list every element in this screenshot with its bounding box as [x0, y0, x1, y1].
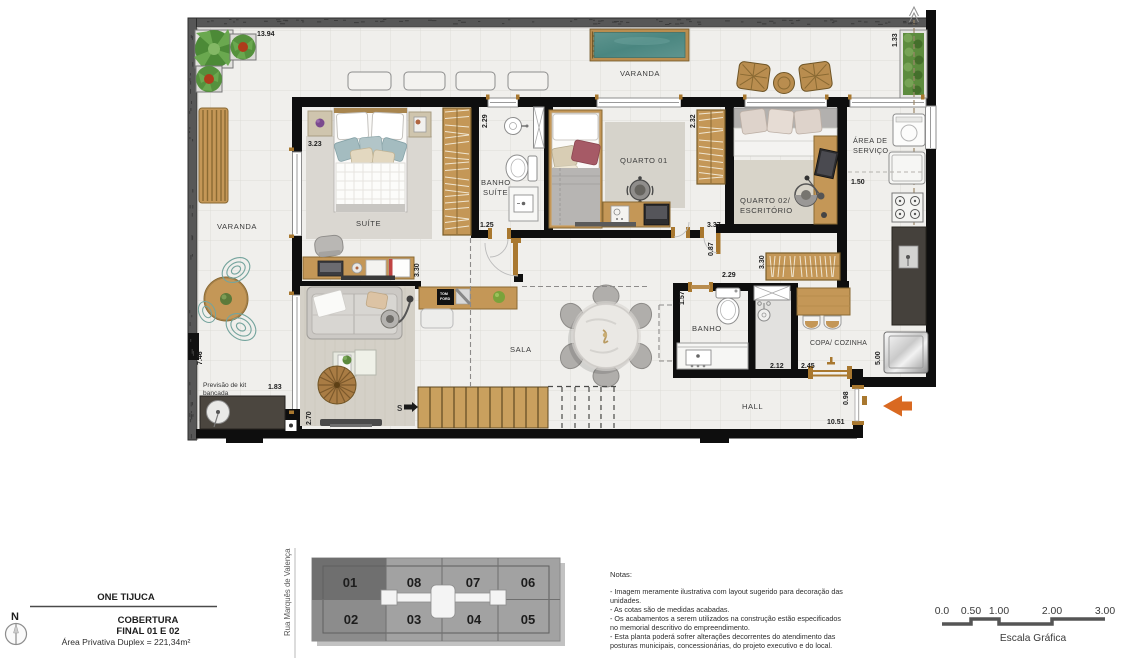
svg-text:FORD: FORD [440, 297, 451, 301]
svg-text:04: 04 [467, 612, 482, 627]
svg-text:HALL: HALL [742, 402, 763, 411]
svg-text:2.70: 2.70 [306, 411, 313, 425]
svg-text:2.29: 2.29 [722, 272, 736, 279]
svg-text:unidades.: unidades. [610, 596, 641, 605]
svg-text:TOM: TOM [440, 292, 448, 296]
svg-text:2.29: 2.29 [482, 114, 489, 128]
svg-text:FINAL 01 E 02: FINAL 01 E 02 [116, 626, 179, 637]
svg-text:VARANDA: VARANDA [217, 222, 257, 231]
svg-text:- Os acabamentos a serem utili: - Os acabamentos a serem utilizados na c… [610, 614, 841, 623]
svg-text:Previsão de kit: Previsão de kit [203, 382, 246, 389]
svg-text:3.30: 3.30 [759, 255, 766, 269]
svg-text:- Esta planta poderá sofrer a: - Esta planta poderá sofrer alterações d… [610, 632, 836, 641]
svg-text:7.46: 7.46 [197, 351, 204, 365]
svg-text:QUARTO 01: QUARTO 01 [620, 156, 668, 165]
svg-text:2.12: 2.12 [770, 363, 784, 370]
svg-text:Notas:: Notas: [610, 570, 632, 579]
svg-text:05: 05 [521, 612, 535, 627]
svg-text:COPA/ COZINHA: COPA/ COZINHA [810, 340, 867, 347]
svg-text:1.57: 1.57 [679, 291, 686, 305]
svg-text:ÁREA DE: ÁREA DE [853, 136, 887, 145]
svg-text:SALA: SALA [510, 345, 532, 354]
svg-text:2.45: 2.45 [801, 363, 815, 370]
svg-text:ONE TIJUCA: ONE TIJUCA [97, 592, 155, 603]
svg-text:SERVIÇO: SERVIÇO [853, 146, 889, 155]
svg-text:1.25: 1.25 [480, 222, 494, 229]
svg-text:0.98: 0.98 [843, 391, 850, 405]
svg-text:QUARTO 02/: QUARTO 02/ [740, 196, 791, 205]
svg-text:3.37: 3.37 [707, 222, 721, 229]
svg-text:S: S [397, 404, 403, 413]
svg-text:ESCRITÓRIO: ESCRITÓRIO [740, 206, 793, 215]
svg-text:1.33: 1.33 [892, 33, 899, 47]
svg-text:VARANDA: VARANDA [620, 69, 660, 78]
svg-text:SUÍTE: SUÍTE [483, 188, 508, 197]
svg-text:1.00: 1.00 [989, 606, 1009, 617]
svg-text:2.32: 2.32 [690, 114, 697, 128]
svg-text:1.50: 1.50 [851, 179, 865, 186]
svg-text:N: N [11, 611, 19, 623]
svg-text:10.51: 10.51 [827, 419, 845, 426]
svg-text:13.94: 13.94 [257, 31, 275, 38]
svg-text:Escala Gráfica: Escala Gráfica [1000, 633, 1067, 644]
svg-text:posturas municipais, concessio: posturas municipais, concessionárias, do… [610, 641, 832, 650]
svg-text:no memorial descritivo do empr: no memorial descritivo do empreendimento… [610, 623, 750, 632]
svg-text:- Imagem meramente ilustrativa: - Imagem meramente ilustrativa com layou… [610, 587, 843, 596]
svg-text:bancada: bancada [203, 390, 229, 397]
svg-text:3.23: 3.23 [308, 141, 322, 148]
svg-text:01: 01 [343, 575, 357, 590]
svg-text:07: 07 [466, 575, 480, 590]
svg-text:BANHO: BANHO [692, 324, 722, 333]
svg-text:3.30: 3.30 [414, 263, 421, 277]
svg-text:06: 06 [521, 575, 535, 590]
svg-text:BANHO: BANHO [481, 178, 511, 187]
svg-text:- As cotas são de medidas acab: - As cotas são de medidas acabadas. [610, 605, 729, 614]
svg-text:0.0: 0.0 [935, 606, 950, 617]
svg-text:03: 03 [407, 612, 421, 627]
svg-text:0.50: 0.50 [961, 606, 981, 617]
svg-text:08: 08 [407, 575, 421, 590]
svg-text:1.83: 1.83 [268, 384, 282, 391]
svg-text:COBERTURA: COBERTURA [118, 615, 179, 626]
svg-text:Área Privativa Duplex = 221,34: Área Privativa Duplex = 221,34m² [62, 637, 191, 647]
svg-text:Rua Marquês de Valença: Rua Marquês de Valença [283, 548, 292, 636]
svg-text:02: 02 [344, 612, 358, 627]
svg-text:0.87: 0.87 [708, 242, 715, 256]
svg-text:5.00: 5.00 [875, 351, 882, 365]
svg-text:2.00: 2.00 [1042, 606, 1062, 617]
svg-text:SUÍTE: SUÍTE [356, 219, 381, 228]
svg-text:3.00: 3.00 [1095, 606, 1115, 617]
